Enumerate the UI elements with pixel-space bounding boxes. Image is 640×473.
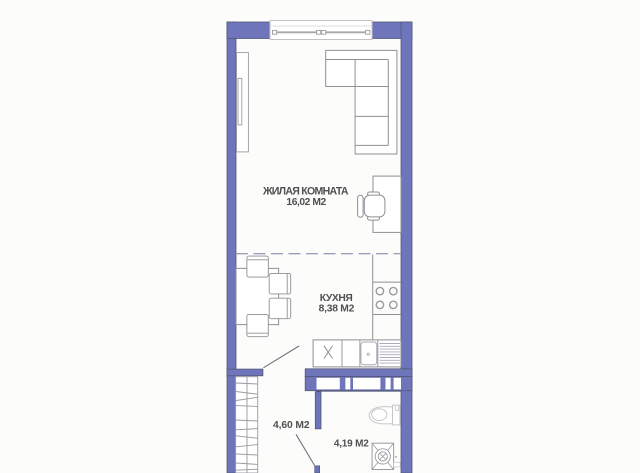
svg-text:8,38 М2: 8,38 М2 bbox=[319, 304, 355, 315]
svg-text:КУХНЯ: КУХНЯ bbox=[320, 293, 353, 304]
svg-text:4,60 М2: 4,60 М2 bbox=[273, 420, 310, 431]
svg-text:16,02 М2: 16,02 М2 bbox=[286, 197, 326, 208]
svg-text:4,19 М2: 4,19 М2 bbox=[334, 439, 369, 450]
svg-text:ЖИЛАЯ КОМНАТА: ЖИЛАЯ КОМНАТА bbox=[262, 185, 349, 197]
